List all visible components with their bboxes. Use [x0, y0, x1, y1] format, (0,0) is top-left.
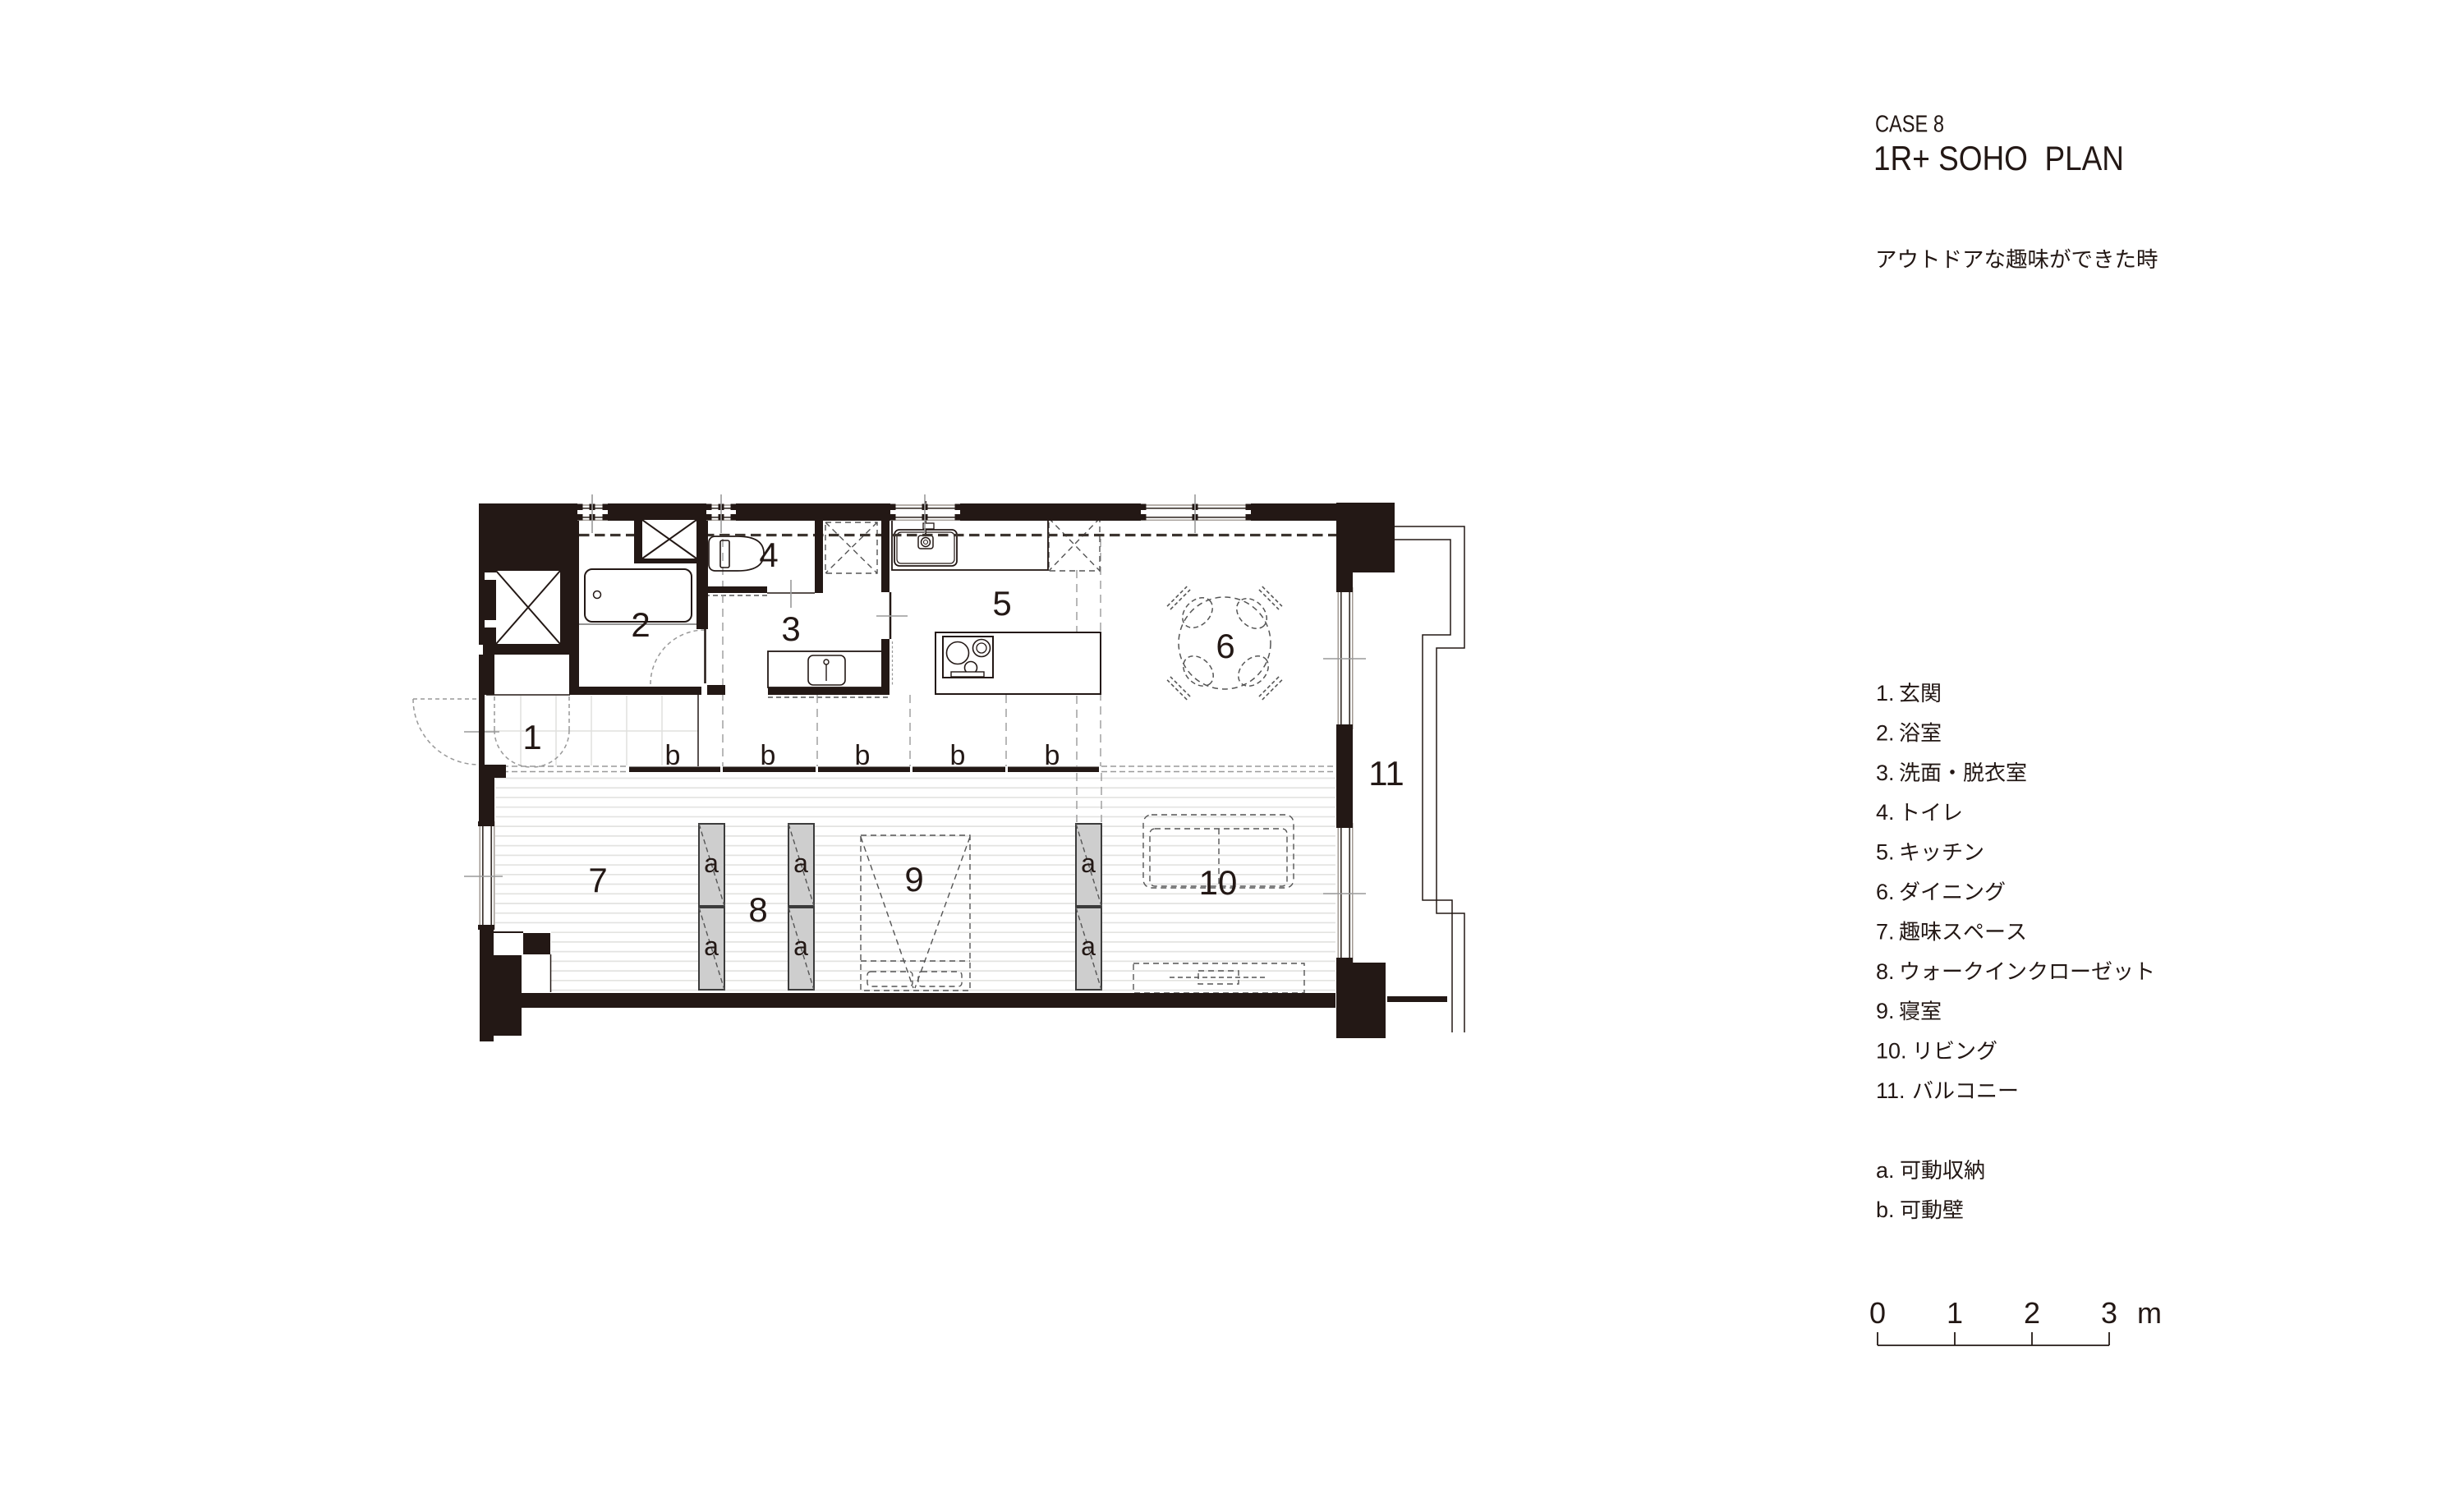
svg-text:b: b [761, 740, 776, 771]
svg-text:b: b [1045, 740, 1060, 771]
svg-text:10.: 10. [1876, 1039, 1907, 1064]
svg-text:2: 2 [2024, 1296, 2040, 1330]
svg-text:a: a [793, 848, 808, 878]
svg-text:b: b [950, 740, 966, 771]
svg-text:8.: 8. [1876, 959, 1895, 984]
svg-text:3: 3 [2101, 1296, 2117, 1330]
svg-text:a: a [793, 931, 808, 961]
svg-text:7.: 7. [1876, 919, 1895, 944]
svg-text:0: 0 [1869, 1296, 1886, 1330]
svg-text:7: 7 [588, 861, 607, 899]
svg-text:1: 1 [522, 718, 541, 756]
svg-text:a: a [704, 931, 719, 961]
svg-text:1R+ SOHO PLAN: 1R+ SOHO PLAN [1873, 139, 2124, 177]
svg-text:3: 3 [781, 609, 800, 648]
svg-text:11: 11 [1368, 754, 1404, 793]
svg-text:4: 4 [759, 536, 778, 574]
svg-text:10: 10 [1199, 863, 1238, 902]
svg-text:8: 8 [748, 890, 767, 929]
svg-text:6: 6 [1216, 627, 1234, 665]
svg-text:9: 9 [904, 860, 923, 899]
svg-text:1: 1 [1947, 1296, 1963, 1330]
svg-text:9.: 9. [1876, 999, 1895, 1023]
svg-text:a.: a. [1876, 1158, 1895, 1183]
svg-text:m: m [2137, 1296, 2162, 1330]
svg-text:6.: 6. [1876, 880, 1895, 904]
svg-text:1.: 1. [1876, 681, 1895, 706]
svg-text:a: a [704, 848, 719, 878]
svg-text:2.: 2. [1876, 720, 1895, 745]
svg-text:3.: 3. [1876, 761, 1895, 785]
svg-text:b: b [855, 740, 871, 771]
svg-text:4.: 4. [1876, 800, 1895, 825]
svg-text:a: a [1081, 848, 1096, 878]
svg-text:5: 5 [992, 584, 1011, 623]
svg-text:2: 2 [631, 605, 650, 644]
svg-text:a: a [1081, 931, 1096, 961]
svg-text:CASE 8: CASE 8 [1875, 112, 1944, 138]
svg-text:5.: 5. [1876, 840, 1895, 865]
svg-text:11.: 11. [1876, 1078, 1905, 1103]
svg-text:b.: b. [1876, 1197, 1895, 1222]
svg-text:b: b [665, 740, 681, 771]
